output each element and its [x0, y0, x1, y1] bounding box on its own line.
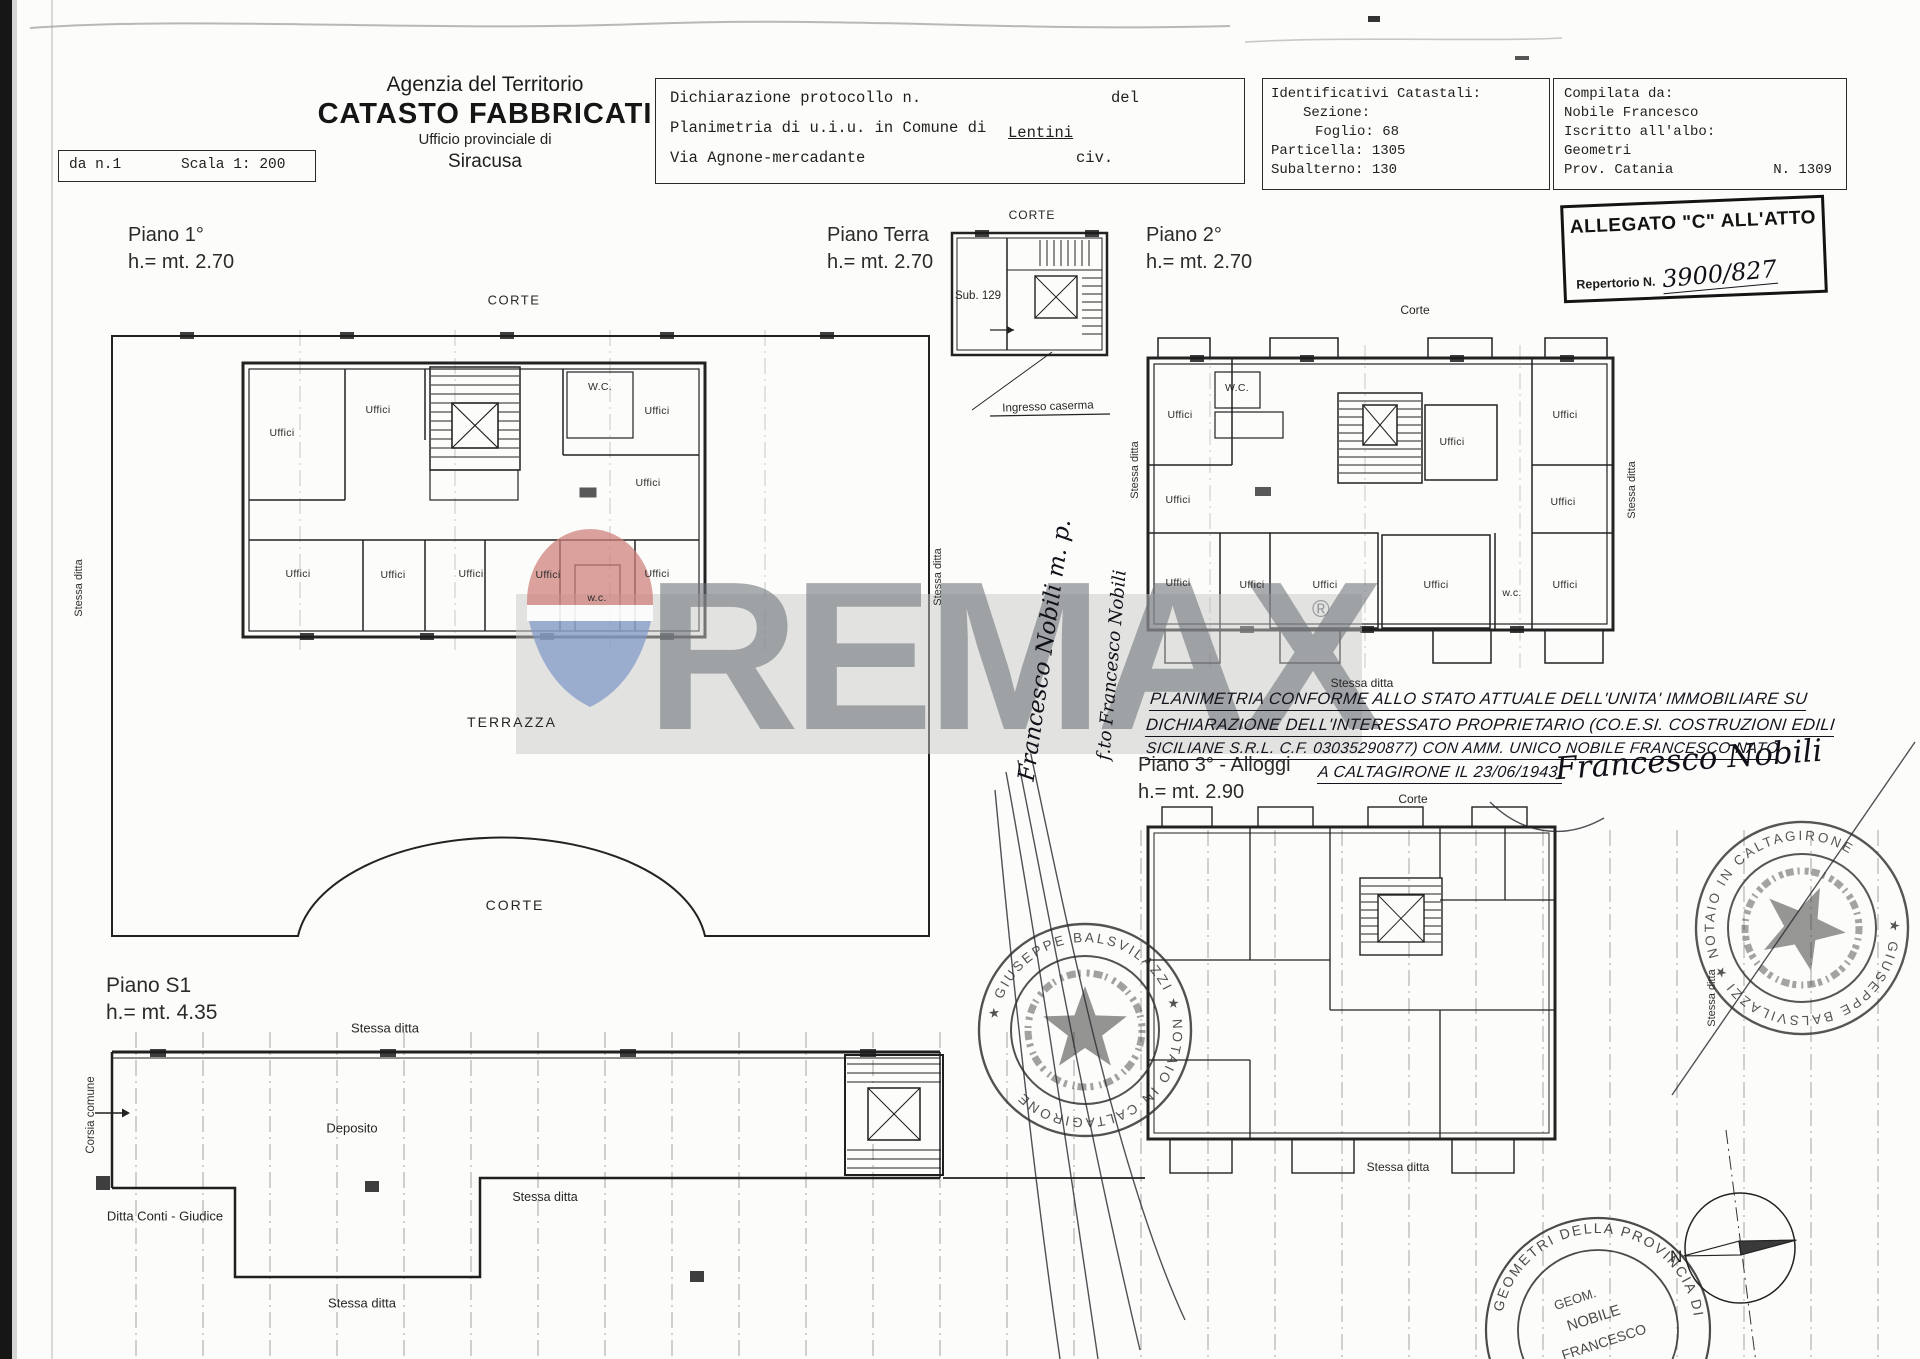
declaration-box: Dichiarazione protocollo n. del Planimet… — [655, 78, 1245, 184]
compilata-box: Compilata da: Nobile Francesco Iscritto … — [1553, 78, 1847, 190]
scale-label: Scala 1: 200 — [181, 157, 285, 173]
scale-box: da n.1 Scala 1: 200 — [58, 150, 316, 182]
compilata-label: Compilata da: — [1554, 85, 1846, 104]
street-label: Via Agnone-mercadante — [670, 149, 865, 167]
agency-header-block: Agenzia del Territorio CATASTO FABBRICAT… — [305, 72, 665, 174]
protocol-label: Dichiarazione protocollo n. — [670, 89, 921, 107]
document-header: Agenzia del Territorio CATASTO FABBRICAT… — [0, 0, 1920, 1359]
catastali-subalterno: Subalterno: 130 — [1263, 161, 1549, 180]
allegato-stamp-box: ALLEGATO "C" ALL'ATTO Repertorio N. 3900… — [1560, 195, 1828, 304]
office-line: Ufficio provinciale di — [305, 130, 665, 150]
catastali-box: Identificativi Catastali: Sezione: Fogli… — [1262, 78, 1550, 190]
planimetria-label: Planimetria di u.i.u. in Comune di — [670, 119, 986, 137]
sheet-number-label: da n.1 — [69, 157, 121, 173]
protocol-del-label: del — [1111, 89, 1139, 107]
allegato-title: ALLEGATO "C" ALL'ATTO — [1564, 207, 1823, 239]
agency-name: Agenzia del Territorio — [305, 72, 665, 98]
comune-value: Lentini — [1008, 124, 1073, 142]
repertorio-number: 3900/827 — [1661, 255, 1778, 294]
catastali-foglio: Foglio: 68 — [1263, 123, 1549, 142]
repertorio-label: Repertorio N. — [1576, 275, 1656, 292]
prov-label: Prov. Catania — [1564, 161, 1673, 180]
albo-value: Geometri — [1554, 142, 1846, 161]
catastali-title: Identificativi Catastali: — [1263, 85, 1549, 104]
catasto-title: CATASTO FABBRICATI — [305, 98, 665, 130]
albo-label: Iscritto all'albo: — [1554, 123, 1846, 142]
catastali-particella: Particella: 1305 — [1263, 142, 1549, 161]
scanned-cadastral-document: ★ GIUSEPPE BALSVILAZZI ★ NOTAIO IN CALTA… — [0, 0, 1920, 1359]
catastali-sezione: Sezione: — [1263, 104, 1549, 123]
albo-number: N. 1309 — [1773, 161, 1832, 180]
prov-row: Prov. Catania N. 1309 — [1554, 161, 1846, 180]
civico-label: civ. — [1076, 149, 1113, 167]
compilata-name: Nobile Francesco — [1554, 104, 1846, 123]
office-city: Siracusa — [305, 150, 665, 174]
